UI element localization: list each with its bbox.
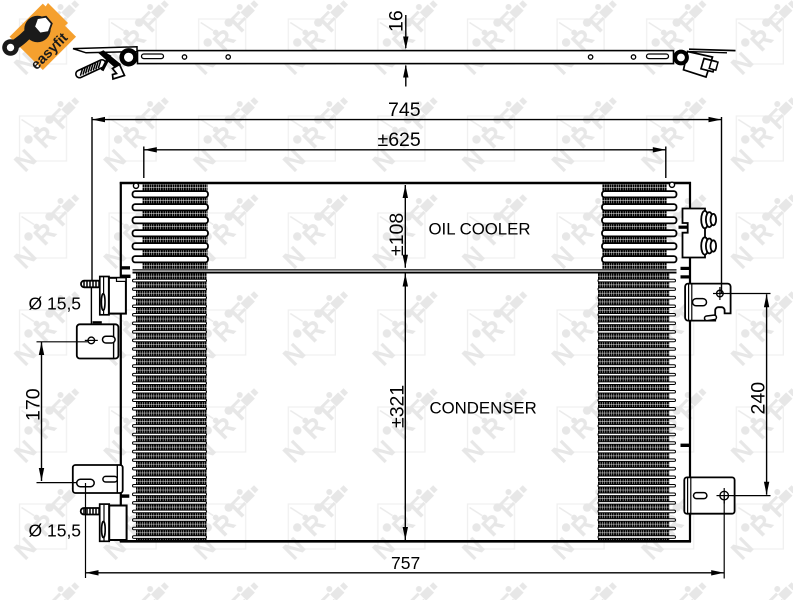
svg-text:±321: ±321 (387, 385, 409, 428)
svg-text:170: 170 (23, 388, 45, 421)
svg-text:CONDENSER: CONDENSER (430, 398, 537, 417)
svg-text:240: 240 (748, 382, 770, 415)
svg-text:±625: ±625 (378, 129, 421, 151)
svg-text:757: 757 (391, 553, 420, 573)
svg-text:16: 16 (386, 10, 408, 32)
svg-text:Ø 15,5: Ø 15,5 (29, 521, 82, 541)
svg-text:OIL COOLER: OIL COOLER (429, 220, 531, 239)
svg-text:745: 745 (388, 99, 421, 121)
svg-text:±108: ±108 (386, 213, 408, 256)
svg-text:Ø 15,5: Ø 15,5 (29, 294, 82, 314)
